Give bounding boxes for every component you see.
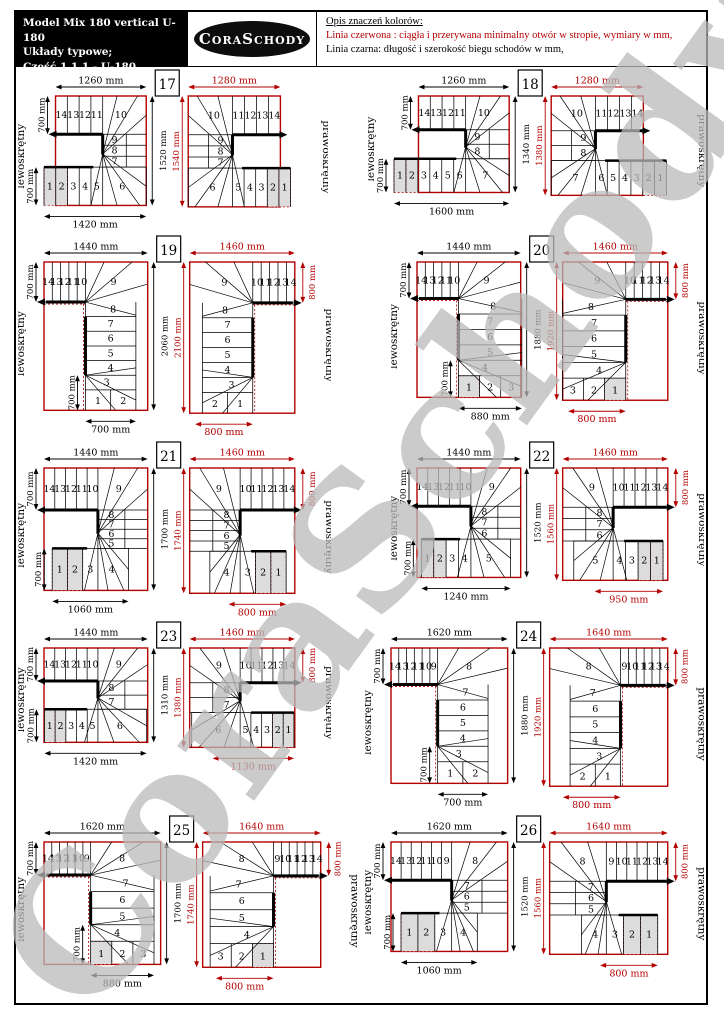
svg-text:3: 3 <box>629 556 635 567</box>
svg-text:9: 9 <box>111 135 117 146</box>
svg-text:6: 6 <box>593 704 599 715</box>
svg-text:1640 mm: 1640 mm <box>239 821 284 832</box>
svg-text:1380 mm: 1380 mm <box>535 125 545 165</box>
svg-text:5: 5 <box>610 173 616 184</box>
left-variant-label: lewoskrętny <box>18 124 27 189</box>
catalog-page: Model Mix 180 vertical U-180 Układy typo… <box>0 0 724 1024</box>
right-variant-label: prawoskrętny <box>696 114 704 187</box>
svg-text:8: 8 <box>482 507 488 518</box>
svg-text:13: 13 <box>620 108 632 119</box>
svg-text:2: 2 <box>580 772 586 783</box>
svg-text:1520 mm: 1520 mm <box>534 503 544 543</box>
svg-text:1: 1 <box>98 949 104 960</box>
svg-text:700 mm: 700 mm <box>401 95 411 130</box>
svg-text:1440 mm: 1440 mm <box>73 628 118 639</box>
left-variant-label: lewoskrętny <box>18 668 27 733</box>
logo-area: CoraSchody <box>188 12 316 66</box>
svg-text:3: 3 <box>570 385 576 396</box>
svg-text:10: 10 <box>86 660 98 671</box>
stair-diagram-pair-18: 14131211109812345671260 mm700 mm700 mm16… <box>368 68 704 219</box>
svg-text:7: 7 <box>482 171 488 182</box>
stair-diagram-pair-19: 14131211109876543121440 mm700 mm700 mm70… <box>18 234 331 437</box>
svg-text:700 mm: 700 mm <box>373 843 383 878</box>
svg-text:700 mm: 700 mm <box>444 798 483 809</box>
svg-text:6: 6 <box>597 530 603 541</box>
svg-text:4: 4 <box>622 173 628 184</box>
svg-text:9: 9 <box>84 853 90 864</box>
svg-text:9: 9 <box>622 662 628 673</box>
svg-text:1: 1 <box>47 181 53 192</box>
svg-text:7: 7 <box>597 519 603 530</box>
svg-text:4: 4 <box>433 171 439 182</box>
right-variant-label: prawoskrętny <box>696 493 704 566</box>
diagram-number: 18 <box>522 77 539 93</box>
svg-text:10: 10 <box>431 856 443 867</box>
svg-text:10: 10 <box>448 275 460 286</box>
diagram-number: 23 <box>160 629 177 645</box>
svg-text:800 mm: 800 mm <box>578 414 617 424</box>
svg-text:700 mm: 700 mm <box>26 647 36 682</box>
stair-diagram-pair-24: 14131211109876543121620 mm700 mm700 mm70… <box>365 620 704 810</box>
svg-text:3: 3 <box>258 182 264 193</box>
svg-text:8: 8 <box>217 146 223 157</box>
svg-text:6: 6 <box>487 332 493 343</box>
header: Model Mix 180 vertical U-180 Układy typo… <box>16 12 706 67</box>
svg-text:1420 mm: 1420 mm <box>73 219 118 230</box>
svg-text:1: 1 <box>237 399 243 410</box>
svg-text:7: 7 <box>108 319 114 330</box>
svg-text:1: 1 <box>282 182 288 193</box>
svg-text:6: 6 <box>215 725 221 736</box>
svg-text:11: 11 <box>232 110 244 121</box>
svg-text:1280 mm: 1280 mm <box>212 76 257 87</box>
model-info-box: Model Mix 180 vertical U-180 Układy typo… <box>16 12 188 66</box>
svg-text:9: 9 <box>589 483 595 494</box>
model-line-2: Układy typowe; <box>23 45 181 60</box>
left-variant-label: lewoskrętny <box>365 869 374 934</box>
diagram-row-3: 14131211109876512341440 mm700 mm700 mm10… <box>18 440 704 617</box>
svg-text:3: 3 <box>421 171 427 182</box>
diagram-row-4: 14131211109871234561440 mm700 mm700 mm14… <box>18 620 704 810</box>
svg-text:10: 10 <box>627 662 639 673</box>
svg-text:13: 13 <box>430 108 442 119</box>
svg-text:10: 10 <box>208 110 220 121</box>
svg-text:1260 mm: 1260 mm <box>441 76 486 87</box>
svg-text:12: 12 <box>79 110 91 121</box>
svg-text:11: 11 <box>454 108 466 119</box>
svg-text:5: 5 <box>486 553 492 564</box>
svg-text:14: 14 <box>283 484 295 495</box>
svg-text:800 mm: 800 mm <box>308 648 318 683</box>
left-variant-label: lewoskrętny <box>391 496 400 561</box>
svg-text:1: 1 <box>286 725 292 736</box>
svg-text:1: 1 <box>275 567 281 578</box>
svg-text:700 mm: 700 mm <box>404 541 414 576</box>
svg-text:5: 5 <box>445 171 451 182</box>
svg-text:9: 9 <box>609 856 615 867</box>
svg-text:3: 3 <box>508 383 514 394</box>
right-variant-label: prawoskrętny <box>323 308 331 381</box>
diagram-number: 26 <box>520 823 537 839</box>
svg-text:700 mm: 700 mm <box>376 158 386 193</box>
svg-text:6: 6 <box>460 703 466 714</box>
svg-text:10: 10 <box>240 661 252 672</box>
svg-text:700 mm: 700 mm <box>399 263 409 298</box>
svg-text:1440 mm: 1440 mm <box>73 241 118 252</box>
svg-text:7: 7 <box>111 157 117 168</box>
svg-text:700 mm: 700 mm <box>399 470 409 505</box>
svg-text:7: 7 <box>464 880 470 891</box>
svg-text:1920 mm: 1920 mm <box>534 697 544 737</box>
svg-text:700 mm: 700 mm <box>383 914 393 949</box>
svg-text:2: 2 <box>72 564 78 575</box>
svg-text:5: 5 <box>223 541 229 552</box>
svg-text:1: 1 <box>658 173 664 184</box>
svg-text:1520 mm: 1520 mm <box>521 876 531 916</box>
diagram-number: 17 <box>159 77 176 93</box>
svg-text:10: 10 <box>613 483 625 494</box>
svg-text:7: 7 <box>223 700 229 711</box>
svg-text:13: 13 <box>646 483 658 494</box>
stair-diagram-pair-25: 14131211109876541231620 mm700 mm700 mm88… <box>18 814 357 991</box>
svg-text:4: 4 <box>82 181 88 192</box>
svg-text:4: 4 <box>108 363 114 374</box>
svg-text:700 mm: 700 mm <box>38 98 48 133</box>
color-legend: Opis znaczeń kolorów: Linia czerwona : c… <box>316 12 706 66</box>
svg-text:10: 10 <box>460 482 472 493</box>
svg-text:7: 7 <box>225 320 231 331</box>
svg-text:13: 13 <box>256 110 268 121</box>
svg-text:1: 1 <box>654 556 660 567</box>
svg-text:9: 9 <box>444 856 450 867</box>
svg-text:1640 mm: 1640 mm <box>586 821 631 832</box>
svg-text:1560 mm: 1560 mm <box>547 504 557 544</box>
svg-text:5: 5 <box>593 720 599 731</box>
svg-text:5: 5 <box>108 539 114 550</box>
svg-text:1130 mm: 1130 mm <box>231 762 276 772</box>
svg-text:9: 9 <box>217 135 223 146</box>
svg-text:1460 mm: 1460 mm <box>220 241 265 252</box>
svg-text:800 mm: 800 mm <box>681 844 691 879</box>
svg-text:4: 4 <box>79 721 85 732</box>
left-variant-label: lewoskrętny <box>365 690 374 755</box>
right-variant-label: prawoskrętny <box>323 666 331 739</box>
svg-text:1440 mm: 1440 mm <box>446 241 491 252</box>
svg-text:1: 1 <box>466 383 472 394</box>
svg-text:6: 6 <box>117 721 123 732</box>
svg-text:1700 mm: 1700 mm <box>174 883 184 923</box>
svg-text:1: 1 <box>57 564 63 575</box>
svg-text:6: 6 <box>210 182 216 193</box>
page-frame: Model Mix 180 vertical U-180 Układy typo… <box>14 10 708 1005</box>
svg-text:800 mm: 800 mm <box>308 472 318 507</box>
svg-text:800 mm: 800 mm <box>681 470 691 505</box>
svg-text:800 mm: 800 mm <box>204 427 243 437</box>
svg-text:1740 mm: 1740 mm <box>174 510 184 550</box>
right-variant-label: prawoskrętny <box>320 120 328 193</box>
svg-text:8: 8 <box>472 856 478 867</box>
svg-text:14: 14 <box>631 108 643 119</box>
svg-text:5: 5 <box>225 350 231 361</box>
diagram-number: 25 <box>173 823 190 839</box>
svg-text:1260 mm: 1260 mm <box>78 76 123 87</box>
svg-text:7: 7 <box>591 318 597 329</box>
svg-text:9: 9 <box>216 484 222 495</box>
left-variant-label: lewoskrętny <box>18 503 27 568</box>
svg-text:2: 2 <box>59 181 65 192</box>
svg-text:8: 8 <box>597 508 603 519</box>
svg-text:700 mm: 700 mm <box>26 264 36 299</box>
svg-text:1: 1 <box>95 396 101 407</box>
svg-text:700 mm: 700 mm <box>441 361 451 396</box>
svg-text:1: 1 <box>260 951 266 962</box>
svg-text:1700 mm: 1700 mm <box>161 509 171 549</box>
svg-text:2: 2 <box>591 385 597 396</box>
svg-text:12: 12 <box>442 108 454 119</box>
svg-text:880 mm: 880 mm <box>471 411 510 422</box>
svg-text:3: 3 <box>140 949 146 960</box>
svg-text:10: 10 <box>279 853 291 864</box>
svg-text:9: 9 <box>116 484 122 495</box>
svg-text:2060 mm: 2060 mm <box>161 316 171 356</box>
svg-text:1: 1 <box>605 772 611 783</box>
right-variant-label: prawoskrętny <box>696 867 704 940</box>
svg-text:14: 14 <box>283 661 295 672</box>
svg-text:11: 11 <box>91 110 103 121</box>
svg-text:6: 6 <box>457 171 463 182</box>
svg-text:12: 12 <box>261 484 273 495</box>
svg-text:8: 8 <box>580 856 586 867</box>
svg-text:3: 3 <box>70 181 76 192</box>
svg-text:4: 4 <box>109 564 115 575</box>
stair-diagram-pair-26: 14131211109876512341620 mm700 mm700 mm10… <box>365 814 704 978</box>
svg-text:11: 11 <box>250 484 262 495</box>
right-variant-label: prawoskrętny <box>349 874 357 947</box>
svg-text:5: 5 <box>108 348 114 359</box>
svg-text:2: 2 <box>270 182 276 193</box>
svg-text:11: 11 <box>624 483 636 494</box>
svg-text:7: 7 <box>217 158 223 169</box>
diagram-number: 21 <box>160 449 177 465</box>
svg-text:800 mm: 800 mm <box>238 607 277 617</box>
right-variant-label: prawoskrętny <box>696 688 704 761</box>
svg-text:11: 11 <box>596 108 608 119</box>
svg-text:9: 9 <box>489 482 495 493</box>
svg-text:10: 10 <box>115 110 127 121</box>
svg-text:8: 8 <box>111 146 117 157</box>
svg-text:2: 2 <box>437 553 443 564</box>
svg-text:10: 10 <box>86 484 98 495</box>
svg-text:1060 mm: 1060 mm <box>417 965 462 976</box>
svg-text:1620 mm: 1620 mm <box>427 821 472 832</box>
svg-text:5: 5 <box>593 556 599 567</box>
diagram-number: 24 <box>520 629 537 645</box>
diagram-number: 22 <box>533 449 550 465</box>
svg-text:700 mm: 700 mm <box>34 552 44 587</box>
svg-text:2: 2 <box>275 725 281 736</box>
svg-text:12: 12 <box>608 108 620 119</box>
svg-text:2: 2 <box>119 949 125 960</box>
svg-text:3: 3 <box>218 951 224 962</box>
svg-text:5: 5 <box>588 904 594 915</box>
coraschody-logo: CoraSchody <box>194 21 310 57</box>
svg-text:800 mm: 800 mm <box>610 968 649 978</box>
svg-text:1640 mm: 1640 mm <box>586 628 631 639</box>
svg-text:2: 2 <box>629 929 635 940</box>
svg-text:700 mm: 700 mm <box>26 169 36 204</box>
svg-text:2100 mm: 2100 mm <box>174 317 184 357</box>
svg-text:6: 6 <box>598 173 604 184</box>
svg-text:6: 6 <box>591 334 597 345</box>
svg-text:1620 mm: 1620 mm <box>427 628 472 639</box>
svg-text:4: 4 <box>223 567 229 578</box>
svg-text:10: 10 <box>616 856 628 867</box>
svg-text:1280 mm: 1280 mm <box>575 76 620 87</box>
svg-text:1460 mm: 1460 mm <box>220 628 265 639</box>
svg-text:9: 9 <box>274 853 280 864</box>
svg-text:1520 mm: 1520 mm <box>159 130 169 170</box>
svg-text:10: 10 <box>571 108 583 119</box>
svg-text:1920 mm: 1920 mm <box>547 311 557 351</box>
svg-text:7: 7 <box>482 518 488 529</box>
stair-diagram-pair-21: 14131211109876512341440 mm700 mm700 mm10… <box>18 440 331 617</box>
svg-text:1880 mm: 1880 mm <box>521 696 531 736</box>
svg-text:14: 14 <box>268 110 280 121</box>
svg-text:1420 mm: 1420 mm <box>73 757 118 768</box>
svg-text:12: 12 <box>261 661 273 672</box>
model-line-1: Model Mix 180 vertical U-180 <box>23 16 181 45</box>
svg-text:1: 1 <box>397 171 403 182</box>
svg-text:1: 1 <box>612 385 618 396</box>
svg-text:9: 9 <box>431 662 437 673</box>
stair-diagram-pair-23: 14131211109871234561440 mm700 mm700 mm14… <box>18 620 331 771</box>
svg-text:13: 13 <box>272 661 284 672</box>
stair-diagram-pair-20: 14131211109876541231440 mm700 mm700 mm88… <box>391 234 704 424</box>
diagram-row-2: 14131211109876543121440 mm700 mm700 mm70… <box>18 234 704 437</box>
svg-text:11: 11 <box>250 661 262 672</box>
svg-text:7: 7 <box>573 173 579 184</box>
legend-black-line: Linia czarna: długość i szerokość biegu … <box>326 43 697 57</box>
svg-text:3: 3 <box>68 721 74 732</box>
svg-text:6: 6 <box>464 891 470 902</box>
svg-text:10: 10 <box>478 108 490 119</box>
legend-red-line: Linia czerwona : ciągła i przerywana min… <box>326 29 697 43</box>
svg-text:1460 mm: 1460 mm <box>220 448 265 459</box>
svg-text:1880 mm: 1880 mm <box>534 309 544 349</box>
svg-text:1: 1 <box>646 929 652 940</box>
svg-text:10: 10 <box>240 484 252 495</box>
svg-text:1620 mm: 1620 mm <box>80 821 125 832</box>
left-variant-label: lewoskrętny <box>18 876 27 941</box>
svg-text:6: 6 <box>588 893 594 904</box>
svg-text:700 mm: 700 mm <box>420 748 430 783</box>
svg-text:6: 6 <box>239 896 245 907</box>
right-variant-label: prawoskrętny <box>323 500 331 573</box>
svg-text:12: 12 <box>244 110 256 121</box>
svg-text:1: 1 <box>47 721 53 732</box>
svg-text:6: 6 <box>119 181 125 192</box>
svg-text:2: 2 <box>473 769 479 780</box>
svg-text:1460 mm: 1460 mm <box>593 448 638 459</box>
diagram-number: 20 <box>533 243 550 259</box>
svg-text:1560 mm: 1560 mm <box>534 877 544 917</box>
svg-text:4: 4 <box>247 182 253 193</box>
svg-text:800 mm: 800 mm <box>334 841 344 876</box>
svg-text:1740 mm: 1740 mm <box>187 884 197 924</box>
right-variant-label: prawoskrętny <box>696 301 704 374</box>
svg-text:9: 9 <box>110 277 116 288</box>
svg-text:7: 7 <box>487 317 493 328</box>
svg-text:950 mm: 950 mm <box>609 594 648 604</box>
svg-text:2: 2 <box>642 556 648 567</box>
svg-text:6: 6 <box>108 334 114 345</box>
stair-diagram-pair-22: 14131211109876123451440 mm700 mm700 mm12… <box>391 440 704 604</box>
diagram-row-5: 14131211109876541231620 mm700 mm700 mm88… <box>18 814 704 991</box>
svg-text:1060 mm: 1060 mm <box>68 604 113 615</box>
svg-text:2: 2 <box>260 567 266 578</box>
svg-text:3: 3 <box>264 725 270 736</box>
svg-text:13: 13 <box>272 484 284 495</box>
svg-text:700 mm: 700 mm <box>73 927 83 962</box>
svg-text:700 mm: 700 mm <box>26 841 36 876</box>
svg-text:4: 4 <box>253 725 259 736</box>
legend-title: Opis znaczeń kolorów: <box>326 15 697 29</box>
svg-text:800 mm: 800 mm <box>225 981 264 991</box>
svg-text:800 mm: 800 mm <box>308 265 318 300</box>
svg-text:800 mm: 800 mm <box>681 649 691 684</box>
diagram-row-1: 14131211109871234561260 mm700 mm700 mm14… <box>18 68 704 231</box>
svg-text:1600 mm: 1600 mm <box>429 206 474 217</box>
svg-text:2: 2 <box>212 399 218 410</box>
svg-text:1: 1 <box>407 927 413 938</box>
svg-text:700 mm: 700 mm <box>26 472 36 507</box>
svg-text:13: 13 <box>67 110 79 121</box>
diagram-number: 19 <box>160 243 177 259</box>
svg-text:10: 10 <box>251 277 263 288</box>
svg-text:3: 3 <box>634 173 640 184</box>
svg-text:12: 12 <box>635 483 647 494</box>
svg-text:1440 mm: 1440 mm <box>446 448 491 459</box>
svg-text:10: 10 <box>75 277 87 288</box>
svg-text:2: 2 <box>57 721 63 732</box>
svg-text:6: 6 <box>225 335 231 346</box>
svg-text:1460 mm: 1460 mm <box>593 241 638 252</box>
svg-text:800 mm: 800 mm <box>572 801 611 811</box>
svg-text:1: 1 <box>425 553 431 564</box>
svg-text:700 mm: 700 mm <box>373 649 383 684</box>
svg-text:14: 14 <box>55 110 67 121</box>
svg-text:880 mm: 880 mm <box>103 978 142 989</box>
svg-text:9: 9 <box>221 277 227 288</box>
diagram-grid: 14131211109871234561260 mm700 mm700 mm14… <box>16 67 706 995</box>
svg-text:14: 14 <box>656 483 668 494</box>
svg-text:1440 mm: 1440 mm <box>73 448 118 459</box>
svg-text:700 mm: 700 mm <box>91 424 130 435</box>
left-variant-label: lewoskrętny <box>368 117 377 182</box>
svg-text:1540 mm: 1540 mm <box>172 131 182 171</box>
svg-text:1380 mm: 1380 mm <box>174 678 184 718</box>
svg-text:2: 2 <box>409 171 415 182</box>
svg-text:8: 8 <box>581 148 587 159</box>
svg-text:5: 5 <box>460 718 466 729</box>
svg-text:6: 6 <box>119 894 125 905</box>
svg-text:2: 2 <box>424 927 430 938</box>
svg-text:2: 2 <box>120 396 126 407</box>
svg-text:6: 6 <box>482 529 488 540</box>
svg-text:2: 2 <box>646 173 652 184</box>
svg-text:700 mm: 700 mm <box>67 375 77 410</box>
left-variant-label: lewoskrętny <box>18 311 27 376</box>
